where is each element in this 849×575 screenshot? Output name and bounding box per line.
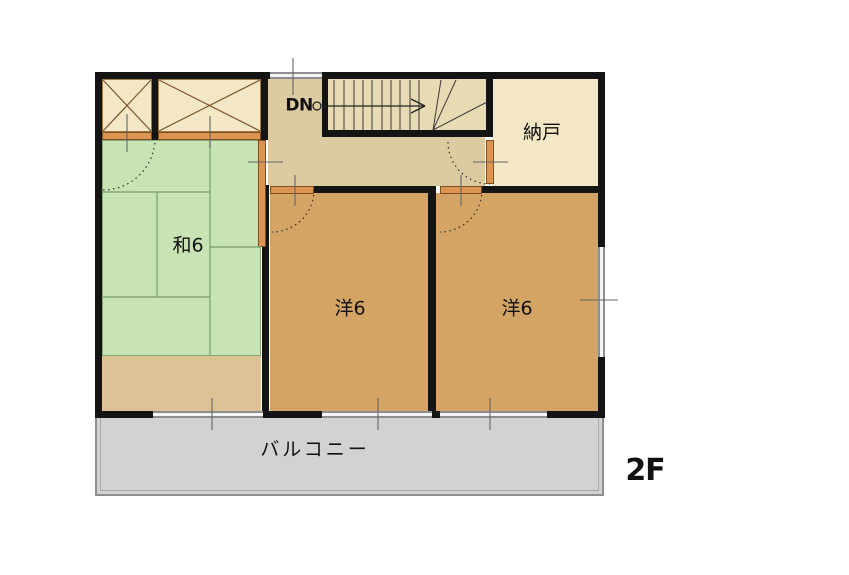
floor-plan: DN 納戸 和6 洋6 洋6 バルコニー 2F <box>0 0 849 575</box>
window-bottom-japanese-room <box>153 411 263 418</box>
door-storage-room <box>486 140 494 184</box>
wall-storage-left <box>486 72 493 137</box>
wall-stairs-bottom <box>322 130 488 137</box>
balcony-label: バルコニー <box>260 441 370 460</box>
wall-closet-divider <box>152 72 158 140</box>
wall-western-rooms-divider <box>428 186 436 411</box>
wall-closet-right <box>261 72 268 140</box>
wall-storage-bottom <box>482 186 605 193</box>
western-room-2-label: 洋6 <box>501 300 532 319</box>
closet-large <box>158 79 261 132</box>
door-western-room-2 <box>440 186 482 194</box>
wall-top-left <box>95 72 270 79</box>
japanese-room-engawa-strip <box>102 356 261 411</box>
wall-left <box>95 72 102 418</box>
fusuma-japanese-room <box>258 140 266 247</box>
wall-stairs-left <box>322 79 328 137</box>
storage-room-label: 納戸 <box>523 124 561 143</box>
window-bottom-western-room-2 <box>440 411 547 418</box>
wall-top-right <box>322 72 605 79</box>
wall-bottom-3 <box>432 411 440 418</box>
window-top <box>270 72 322 79</box>
door-closet-small <box>102 132 152 140</box>
wall-bottom-1 <box>95 411 153 418</box>
japanese-room-label: 和6 <box>172 237 203 256</box>
closet-small <box>102 79 152 132</box>
wall-right-upper <box>598 72 605 247</box>
western-room-1-label: 洋6 <box>334 300 365 319</box>
door-western-room-1 <box>270 186 314 194</box>
window-bottom-western-room-1 <box>322 411 432 418</box>
wall-right-lower <box>598 357 605 418</box>
staircase-area <box>328 79 486 130</box>
door-closet-large <box>158 132 261 140</box>
wall-bottom-2 <box>263 411 322 418</box>
wall-hall-bottom <box>314 186 428 193</box>
window-right <box>598 247 605 357</box>
floor-label: 2F <box>625 456 664 486</box>
stairs-dn-label: DN <box>285 98 312 115</box>
wall-bottom-4 <box>547 411 605 418</box>
